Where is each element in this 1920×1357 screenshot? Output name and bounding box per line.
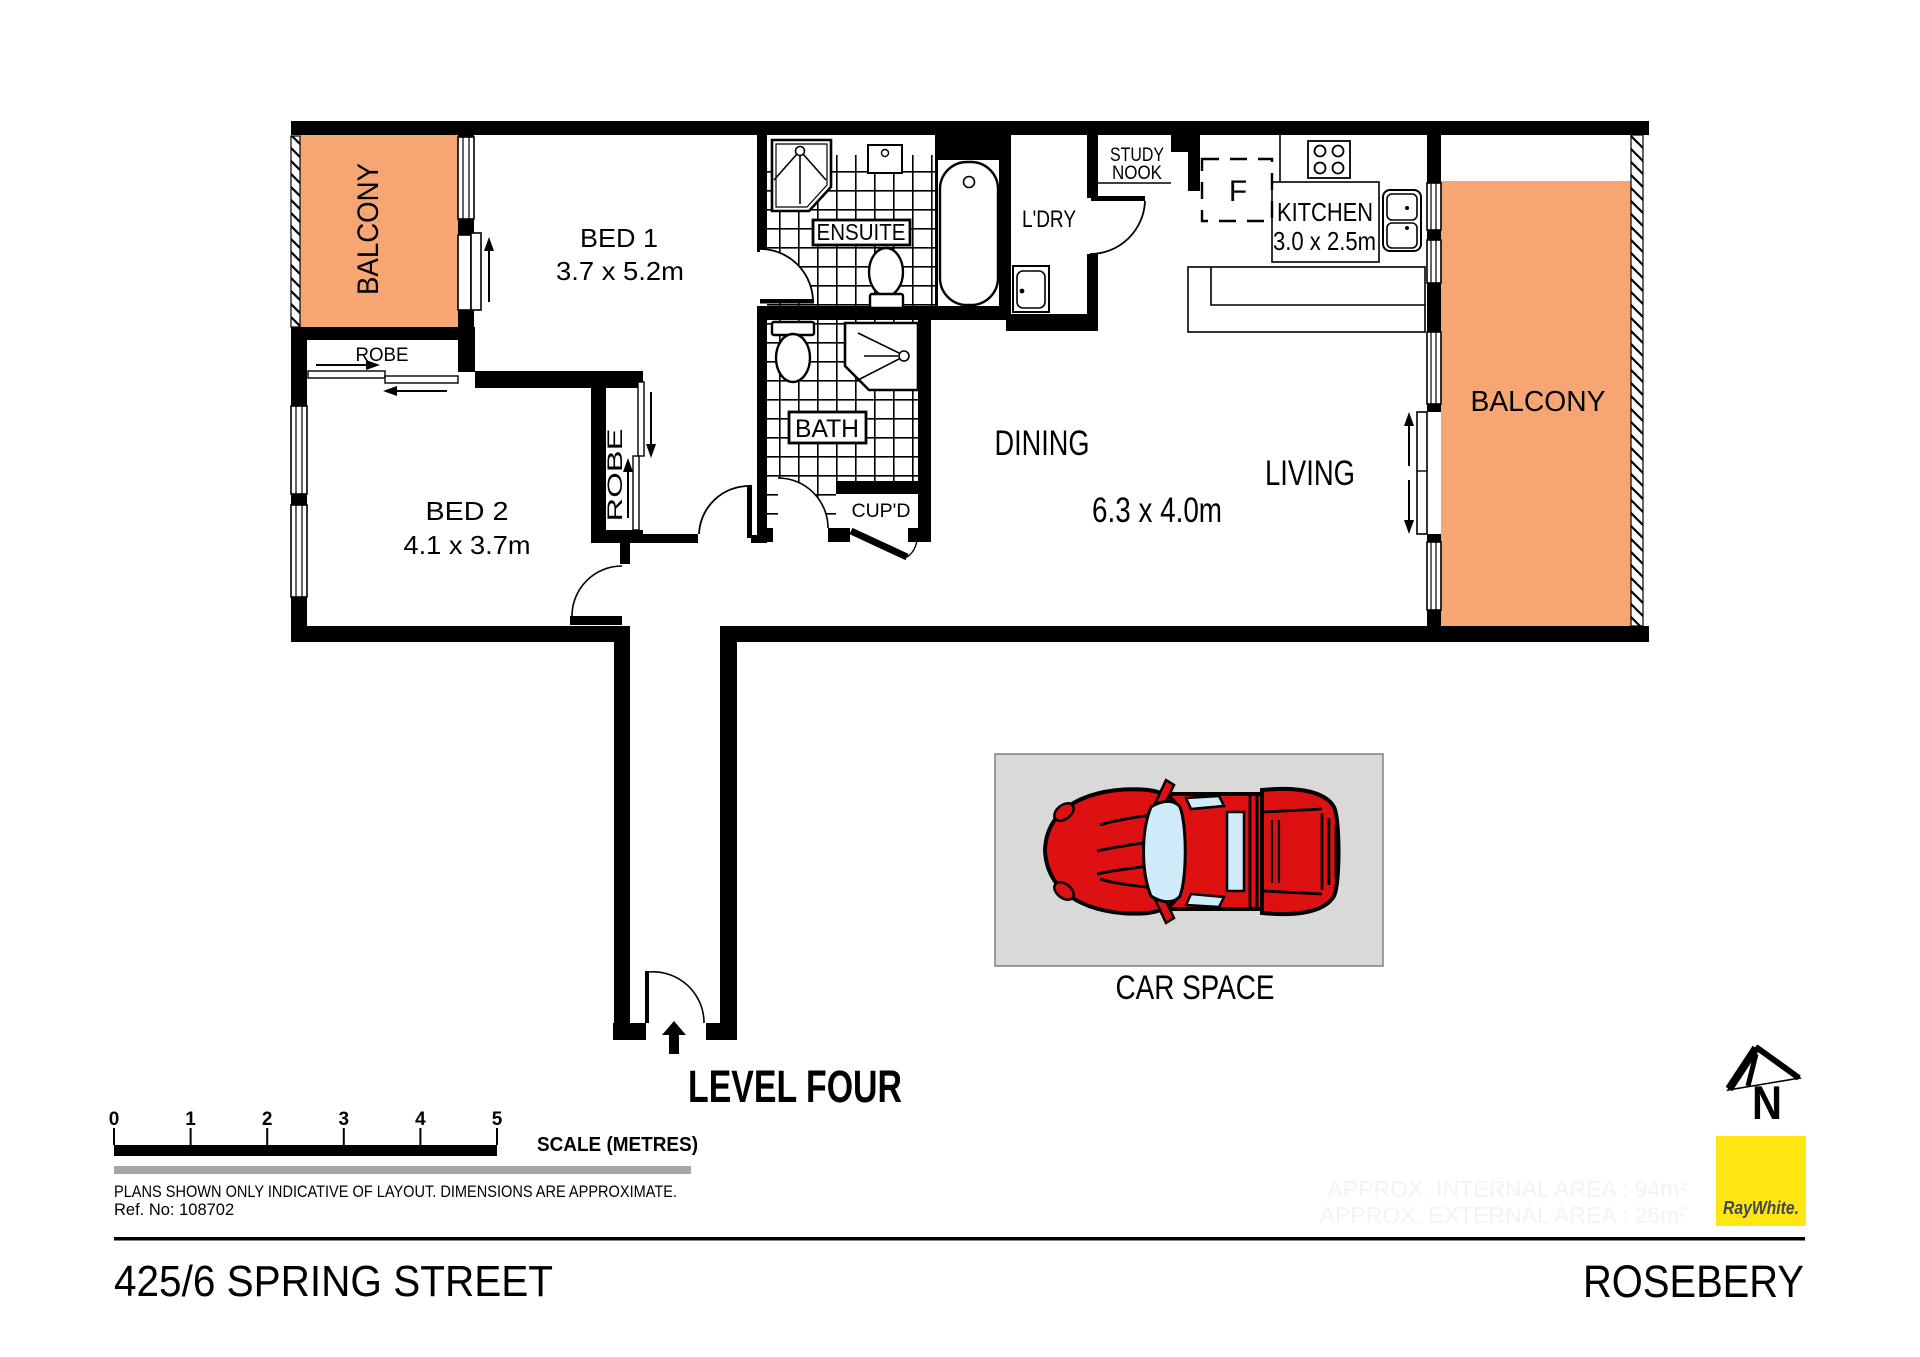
svg-text:2: 2 xyxy=(262,1109,273,1130)
svg-text:ROSEBERY: ROSEBERY xyxy=(1583,1256,1804,1307)
svg-text:PLANS SHOWN ONLY INDICATIVE OF: PLANS SHOWN ONLY INDICATIVE OF LAYOUT. D… xyxy=(114,1183,677,1201)
svg-text:Ref. No: 108702: Ref. No: 108702 xyxy=(114,1201,234,1219)
svg-text:ROBE: ROBE xyxy=(356,344,409,366)
svg-text:4.1 x 3.7m: 4.1 x 3.7m xyxy=(404,530,531,560)
svg-text:3.0 x 2.5m: 3.0 x 2.5m xyxy=(1273,226,1376,256)
svg-text:BATH: BATH xyxy=(795,415,859,443)
svg-text:BALCONY: BALCONY xyxy=(352,163,385,295)
svg-text:CAR SPACE: CAR SPACE xyxy=(1116,969,1275,1007)
svg-text:3: 3 xyxy=(339,1109,350,1130)
svg-text:BED 1: BED 1 xyxy=(580,223,658,253)
svg-text:F: F xyxy=(1229,175,1247,208)
svg-text:3.7 x 5.2m: 3.7 x 5.2m xyxy=(556,256,684,286)
svg-text:SCALE (METRES): SCALE (METRES) xyxy=(537,1134,698,1156)
svg-text:CUP'D: CUP'D xyxy=(852,501,911,522)
svg-text:ENSUITE: ENSUITE xyxy=(817,219,906,245)
svg-text:LIVING: LIVING xyxy=(1265,454,1355,493)
svg-text:1: 1 xyxy=(185,1109,196,1130)
svg-text:DINING: DINING xyxy=(995,424,1090,463)
svg-text:APPROX. INTERNAL AREA : 94m²: APPROX. INTERNAL AREA : 94m² xyxy=(1327,1176,1687,1202)
svg-text:ROBE: ROBE xyxy=(604,429,627,522)
svg-text:BED 2: BED 2 xyxy=(426,496,509,526)
svg-text:NOOK: NOOK xyxy=(1112,163,1162,184)
svg-text:L'DRY: L'DRY xyxy=(1022,206,1076,233)
svg-text:APPROX. EXTERNAL AREA : 26m²: APPROX. EXTERNAL AREA : 26m² xyxy=(1320,1202,1688,1228)
svg-text:6.3 x 4.0m: 6.3 x 4.0m xyxy=(1092,491,1222,530)
svg-text:4: 4 xyxy=(415,1109,426,1130)
svg-text:KITCHEN: KITCHEN xyxy=(1277,197,1373,227)
svg-text:BALCONY: BALCONY xyxy=(1471,386,1606,418)
svg-text:N: N xyxy=(1752,1076,1782,1129)
svg-text:LEVEL FOUR: LEVEL FOUR xyxy=(688,1061,902,1112)
svg-text:5: 5 xyxy=(492,1109,503,1130)
svg-text:RayWhite.: RayWhite. xyxy=(1723,1197,1799,1218)
svg-text:425/6 SPRING STREET: 425/6 SPRING STREET xyxy=(114,1257,553,1306)
svg-text:0: 0 xyxy=(109,1109,120,1130)
